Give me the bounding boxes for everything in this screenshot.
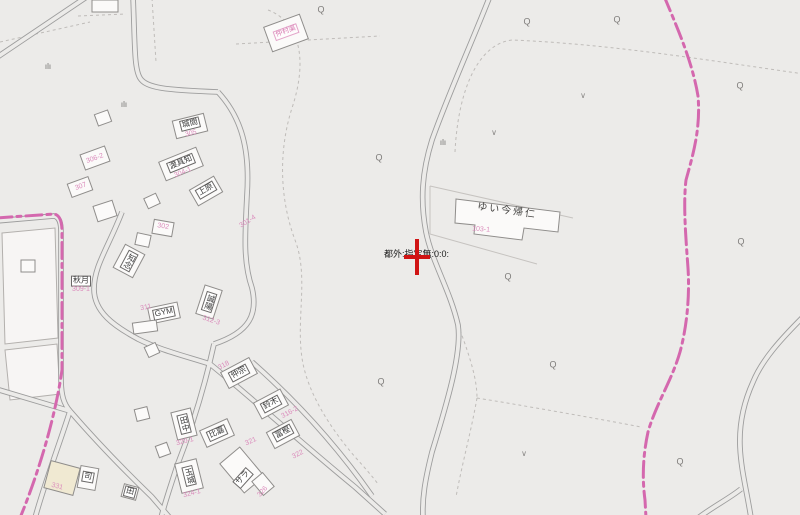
- orchard-symbol-icon: Q: [613, 16, 620, 25]
- lot-number-label: 309-1: [72, 286, 90, 294]
- center-marker-cross: [404, 255, 430, 259]
- orchard-symbol-icon: Q: [737, 238, 744, 247]
- building-footprint: [92, 0, 118, 12]
- orchard-symbol-icon: Q: [676, 458, 683, 467]
- building-footprint: [94, 110, 111, 126]
- map-canvas[interactable]: ゆい今帰仁103-1仲村渠城間305301-4306-2307渡具知304-1上…: [0, 0, 800, 515]
- grassland-symbol-icon: ılı: [45, 63, 51, 71]
- building-footprint: [155, 442, 170, 457]
- building-footprint: [134, 407, 150, 422]
- orchard-symbol-icon: Q: [317, 6, 324, 15]
- field-symbol-icon: ∨: [521, 450, 527, 458]
- grassland-symbol-icon: ılı: [121, 101, 127, 109]
- grassland-symbol-icon: ılı: [440, 139, 446, 147]
- building-footprint: [21, 260, 35, 272]
- orchard-symbol-icon: Q: [523, 18, 530, 27]
- lot-number-label: 103-1: [472, 226, 490, 235]
- orchard-symbol-icon: Q: [375, 154, 382, 163]
- building-footprint: [135, 233, 151, 248]
- field-symbol-icon: ∨: [580, 92, 586, 100]
- building-footprint: [93, 200, 117, 221]
- field-symbol-icon: ∨: [491, 129, 497, 137]
- orchard-symbol-icon: Q: [377, 378, 384, 387]
- building-footprint: [144, 193, 160, 208]
- building-label: 秋月: [71, 276, 91, 287]
- orchard-symbol-icon: Q: [736, 82, 743, 91]
- building-label: 司: [81, 471, 95, 484]
- building-footprint: [132, 320, 157, 334]
- orchard-symbol-icon: Q: [504, 273, 511, 282]
- orchard-symbol-icon: Q: [549, 361, 556, 370]
